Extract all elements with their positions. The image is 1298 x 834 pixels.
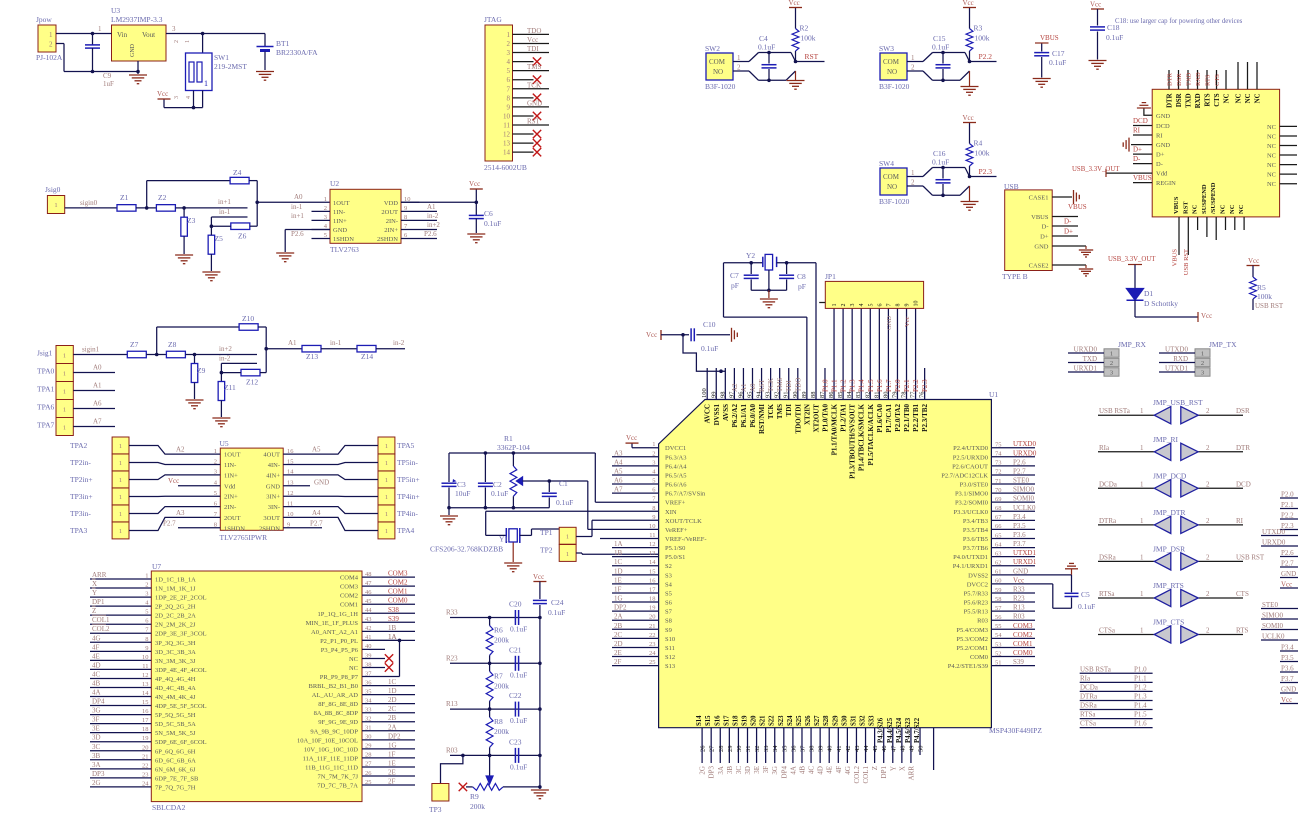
svg-text:COL2: COL2 bbox=[92, 625, 110, 633]
svg-text:200k: 200k bbox=[494, 636, 509, 645]
svg-text:SBLCDA2: SBLCDA2 bbox=[152, 803, 186, 812]
svg-text:2E: 2E bbox=[614, 649, 622, 657]
svg-text:COM3: COM3 bbox=[1013, 622, 1033, 630]
svg-text:1: 1 bbox=[385, 443, 388, 450]
svg-text:8A_8B_8C_8DP: 8A_8B_8C_8DP bbox=[314, 710, 359, 717]
svg-text:D-: D- bbox=[1133, 155, 1141, 163]
svg-text:Z: Z bbox=[92, 607, 96, 615]
svg-text:COM2: COM2 bbox=[1013, 631, 1033, 639]
svg-text:7: 7 bbox=[886, 304, 892, 307]
svg-text:XT2IN: XT2IN bbox=[803, 404, 811, 425]
svg-text:S5: S5 bbox=[665, 590, 672, 597]
svg-text:R6: R6 bbox=[494, 626, 503, 635]
svg-text:4P_4Q_4G_4H: 4P_4Q_4G_4H bbox=[155, 676, 196, 683]
svg-text:9: 9 bbox=[905, 304, 911, 307]
svg-text:4G: 4G bbox=[92, 634, 101, 642]
svg-text:DVCC1: DVCC1 bbox=[665, 445, 686, 452]
svg-text:9: 9 bbox=[404, 205, 407, 212]
svg-text:Z: Z bbox=[871, 766, 879, 770]
svg-text:Z11: Z11 bbox=[224, 383, 236, 392]
svg-text:C8: C8 bbox=[797, 272, 806, 281]
svg-text:0.1uF: 0.1uF bbox=[491, 489, 508, 498]
svg-text:P2.1/TB0: P2.1/TB0 bbox=[903, 404, 911, 432]
svg-text:P5.5/R13: P5.5/R13 bbox=[964, 609, 988, 616]
svg-text:JMP_RX: JMP_RX bbox=[1118, 340, 1147, 349]
svg-text:Y1: Y1 bbox=[499, 535, 508, 544]
svg-text:10: 10 bbox=[142, 654, 149, 661]
svg-text:TP3in-: TP3in- bbox=[70, 509, 91, 518]
svg-text:GND: GND bbox=[527, 99, 542, 107]
svg-text:8: 8 bbox=[895, 304, 901, 307]
svg-text:5D_5C_5B_5A: 5D_5C_5B_5A bbox=[155, 721, 196, 728]
svg-text:B3F-1020: B3F-1020 bbox=[879, 197, 910, 206]
svg-text:S23: S23 bbox=[778, 715, 785, 726]
svg-text:29: 29 bbox=[727, 746, 734, 753]
svg-text:COM2: COM2 bbox=[340, 593, 358, 600]
svg-text:2: 2 bbox=[1206, 553, 1210, 561]
svg-text:P3.6/TB5: P3.6/TB5 bbox=[963, 536, 988, 543]
svg-text:4E: 4E bbox=[92, 652, 100, 660]
svg-text:XIN: XIN bbox=[665, 509, 677, 516]
svg-text:3362P-104: 3362P-104 bbox=[497, 443, 530, 452]
svg-text:A0: A0 bbox=[749, 383, 757, 392]
svg-text:RI: RI bbox=[1156, 133, 1163, 140]
svg-text:P2.7: P2.7 bbox=[1281, 560, 1294, 568]
svg-text:GND: GND bbox=[886, 316, 893, 330]
svg-text:1uF: 1uF bbox=[103, 80, 114, 88]
svg-text:P4.2/STE1/S39: P4.2/STE1/S39 bbox=[948, 663, 988, 670]
svg-text:4F: 4F bbox=[92, 643, 100, 651]
svg-text:NC: NC bbox=[1267, 133, 1276, 140]
svg-text:2: 2 bbox=[1206, 480, 1210, 488]
svg-text:1: 1 bbox=[119, 460, 122, 467]
svg-text:R9: R9 bbox=[470, 792, 479, 801]
svg-text:14: 14 bbox=[142, 690, 149, 697]
svg-text:Vcc: Vcc bbox=[533, 573, 544, 581]
svg-text:DCD: DCD bbox=[1236, 480, 1251, 488]
svg-text:SW4: SW4 bbox=[879, 159, 894, 168]
svg-text:4D_4C_4B_4A: 4D_4C_4B_4A bbox=[155, 685, 196, 692]
svg-text:40: 40 bbox=[827, 746, 834, 753]
svg-text:P1.3/TBOUTH/SVSOUT: P1.3/TBOUTH/SVSOUT bbox=[849, 404, 857, 479]
svg-text:CTSa: CTSa bbox=[1099, 627, 1116, 635]
svg-text:A1: A1 bbox=[740, 383, 748, 392]
svg-text:18: 18 bbox=[142, 726, 149, 733]
svg-text:49: 49 bbox=[908, 746, 915, 753]
svg-text:4G: 4G bbox=[844, 766, 852, 775]
svg-text:in+1: in+1 bbox=[291, 212, 304, 220]
svg-text:P3.5: P3.5 bbox=[1281, 654, 1294, 662]
svg-text:A7: A7 bbox=[93, 418, 102, 426]
svg-text:SW3: SW3 bbox=[879, 44, 894, 53]
svg-text:Jsig1: Jsig1 bbox=[37, 349, 53, 358]
svg-text:0.1uF: 0.1uF bbox=[758, 43, 775, 52]
svg-text:UTXD1: UTXD1 bbox=[1165, 365, 1188, 373]
svg-text:43: 43 bbox=[854, 746, 861, 753]
svg-text:NC: NC bbox=[1267, 162, 1276, 169]
svg-text:1: 1 bbox=[204, 79, 208, 88]
svg-text:3: 3 bbox=[174, 96, 180, 99]
svg-text:SOMI0: SOMI0 bbox=[1013, 495, 1035, 503]
svg-text:1: 1 bbox=[385, 477, 388, 484]
svg-text:2D: 2D bbox=[614, 640, 623, 648]
svg-text:12: 12 bbox=[503, 131, 511, 139]
svg-text:P1.1/TA0/MCLK: P1.1/TA0/MCLK bbox=[831, 403, 839, 455]
svg-text:19: 19 bbox=[142, 735, 149, 742]
svg-text:TP2: TP2 bbox=[540, 546, 553, 555]
svg-text:Vcc: Vcc bbox=[157, 90, 168, 98]
svg-text:1: 1 bbox=[1201, 351, 1204, 358]
svg-text:A4: A4 bbox=[614, 458, 623, 466]
svg-text:CFS206-32.768KDZBB: CFS206-32.768KDZBB bbox=[430, 545, 503, 554]
svg-text:3: 3 bbox=[507, 49, 511, 57]
svg-text:P2.7/ADC12CLK: P2.7/ADC12CLK bbox=[941, 472, 988, 479]
svg-text:Z10: Z10 bbox=[242, 314, 254, 323]
svg-text:15: 15 bbox=[142, 699, 149, 706]
svg-text:COL1: COL1 bbox=[92, 616, 110, 624]
svg-text:C24: C24 bbox=[551, 598, 564, 607]
svg-text:1: 1 bbox=[49, 31, 53, 39]
svg-text:TP2in+: TP2in+ bbox=[70, 475, 93, 484]
svg-text:C17: C17 bbox=[1052, 49, 1065, 58]
svg-text:NC: NC bbox=[1192, 204, 1199, 214]
svg-text:1C: 1C bbox=[614, 558, 623, 566]
svg-text:P2.2: P2.2 bbox=[979, 52, 993, 61]
svg-text:RST: RST bbox=[758, 378, 766, 392]
svg-text:4C: 4C bbox=[808, 766, 816, 775]
svg-text:R8: R8 bbox=[494, 717, 503, 726]
svg-text:XT2OUT: XT2OUT bbox=[812, 404, 820, 433]
svg-text:219-2MST: 219-2MST bbox=[214, 62, 247, 71]
svg-text:NC: NC bbox=[1245, 93, 1252, 103]
svg-text:U7: U7 bbox=[152, 562, 161, 571]
svg-text:in-1: in-1 bbox=[330, 339, 342, 347]
svg-text:1IN-: 1IN- bbox=[333, 209, 345, 216]
svg-text:2N_2M_2K_2J: 2N_2M_2K_2J bbox=[155, 622, 196, 629]
svg-text:DVSS2: DVSS2 bbox=[968, 572, 988, 579]
svg-text:C2: C2 bbox=[493, 480, 502, 489]
svg-text:D-: D- bbox=[1156, 161, 1163, 168]
svg-text:3D: 3D bbox=[92, 734, 101, 742]
svg-text:MSP430F449IPZ: MSP430F449IPZ bbox=[989, 726, 1042, 735]
svg-text:R23: R23 bbox=[1013, 595, 1025, 603]
svg-text:1B: 1B bbox=[388, 624, 397, 632]
svg-text:VBUS: VBUS bbox=[1068, 203, 1087, 211]
svg-text:TXD: TXD bbox=[1083, 355, 1097, 363]
svg-text:R3: R3 bbox=[974, 24, 983, 33]
svg-text:6N_6M_6K_6J: 6N_6M_6K_6J bbox=[155, 766, 196, 773]
svg-text:TDO/TDI: TDO/TDI bbox=[794, 404, 802, 434]
svg-text:DSRa: DSRa bbox=[1080, 702, 1098, 710]
svg-text:P6.0/A0: P6.0/A0 bbox=[749, 404, 757, 428]
svg-text:1F: 1F bbox=[614, 585, 622, 593]
svg-text:URXD1: URXD1 bbox=[1074, 365, 1098, 373]
svg-text:3: 3 bbox=[145, 591, 148, 598]
svg-text:RXD: RXD bbox=[1173, 355, 1188, 363]
svg-text:P3.5: P3.5 bbox=[1013, 522, 1026, 530]
svg-text:AVSS: AVSS bbox=[722, 404, 730, 421]
svg-text:P1.4: P1.4 bbox=[858, 379, 866, 392]
svg-text:JP1: JP1 bbox=[825, 272, 836, 281]
svg-text:5P_5Q_5G_5H: 5P_5Q_5G_5H bbox=[155, 712, 196, 719]
svg-text:3IN-: 3IN- bbox=[268, 504, 280, 511]
svg-text:P2.3: P2.3 bbox=[979, 167, 993, 176]
svg-text:1: 1 bbox=[385, 494, 388, 501]
svg-text:P4.0/UTXD1: P4.0/UTXD1 bbox=[953, 554, 988, 561]
svg-text:0.1uF: 0.1uF bbox=[510, 625, 527, 634]
svg-text:R13: R13 bbox=[1013, 604, 1025, 612]
svg-text:1: 1 bbox=[63, 353, 66, 360]
svg-text:2A: 2A bbox=[388, 723, 397, 731]
svg-text:P2.7: P2.7 bbox=[163, 520, 176, 528]
svg-text:1A: 1A bbox=[388, 633, 397, 641]
svg-text:CASE1: CASE1 bbox=[1029, 195, 1049, 202]
svg-text:S28: S28 bbox=[823, 715, 830, 726]
svg-text:COM0: COM0 bbox=[970, 654, 988, 661]
svg-text:DTRa: DTRa bbox=[1080, 692, 1098, 700]
svg-text:DCD: DCD bbox=[1156, 123, 1170, 130]
svg-text:P1.1: P1.1 bbox=[831, 379, 839, 392]
svg-text:VBUS: VBUS bbox=[1172, 249, 1179, 267]
svg-text:1OUT: 1OUT bbox=[333, 200, 350, 207]
svg-text:39: 39 bbox=[818, 746, 825, 753]
svg-text:U1: U1 bbox=[989, 390, 998, 399]
svg-text:SUSPEND: SUSPEND bbox=[1201, 184, 1208, 214]
svg-text:2B: 2B bbox=[614, 622, 623, 630]
svg-text:BT1: BT1 bbox=[276, 39, 290, 48]
svg-text:27: 27 bbox=[709, 745, 716, 752]
svg-text:DTRa: DTRa bbox=[1099, 517, 1117, 525]
svg-text:0.1uF: 0.1uF bbox=[510, 762, 527, 771]
svg-text:P4.3/S26: P4.3/S26 bbox=[878, 717, 885, 743]
svg-text:P1.3: P1.3 bbox=[1134, 692, 1147, 700]
svg-text:Vcc: Vcc bbox=[626, 434, 637, 442]
svg-text:200k: 200k bbox=[470, 802, 485, 811]
svg-text:4: 4 bbox=[507, 58, 511, 66]
svg-text:3E: 3E bbox=[753, 766, 761, 774]
svg-text:NC: NC bbox=[1224, 93, 1231, 103]
svg-text:A5: A5 bbox=[312, 446, 321, 454]
svg-text:D-: D- bbox=[1064, 218, 1072, 226]
svg-text:URXD0: URXD0 bbox=[1262, 539, 1286, 547]
svg-text:Vcc: Vcc bbox=[1248, 257, 1259, 265]
svg-text:1: 1 bbox=[1140, 553, 1144, 561]
svg-text:TLV2765IPWR: TLV2765IPWR bbox=[220, 533, 268, 542]
svg-text:34: 34 bbox=[772, 745, 779, 752]
svg-text:ARR: ARR bbox=[907, 766, 915, 781]
svg-text:1: 1 bbox=[566, 551, 569, 558]
svg-text:200k: 200k bbox=[494, 681, 509, 690]
svg-text:/SUSPEND: /SUSPEND bbox=[1210, 182, 1217, 215]
svg-text:R33: R33 bbox=[446, 609, 458, 617]
svg-text:1: 1 bbox=[63, 407, 66, 414]
svg-text:TDI: TDI bbox=[527, 45, 539, 53]
svg-text:10: 10 bbox=[649, 523, 656, 530]
svg-text:S24: S24 bbox=[787, 715, 794, 726]
svg-text:5: 5 bbox=[324, 232, 327, 239]
svg-text:1: 1 bbox=[119, 511, 122, 518]
svg-text:NO: NO bbox=[887, 68, 897, 76]
svg-text:5: 5 bbox=[868, 304, 874, 307]
svg-text:pF: pF bbox=[731, 281, 739, 290]
svg-text:3: 3 bbox=[324, 214, 327, 221]
svg-text:TP5in+: TP5in+ bbox=[397, 475, 420, 484]
svg-text:11: 11 bbox=[503, 122, 510, 130]
svg-text:3C: 3C bbox=[735, 766, 743, 775]
svg-text:S10: S10 bbox=[665, 636, 675, 643]
svg-text:1: 1 bbox=[1140, 627, 1144, 635]
svg-text:2: 2 bbox=[911, 64, 915, 72]
svg-text:P3.7/TB6: P3.7/TB6 bbox=[963, 545, 989, 552]
svg-text:S22: S22 bbox=[769, 715, 776, 726]
svg-text:COM: COM bbox=[709, 58, 726, 66]
svg-text:in+2: in+2 bbox=[427, 221, 440, 229]
svg-text:3D: 3D bbox=[744, 766, 752, 775]
svg-text:P5.4/COM3: P5.4/COM3 bbox=[956, 627, 988, 634]
svg-text:S27: S27 bbox=[814, 715, 821, 726]
svg-text:RXD: RXD bbox=[1195, 93, 1202, 108]
svg-text:P2.0: P2.0 bbox=[1281, 491, 1294, 499]
svg-text:12: 12 bbox=[142, 672, 149, 679]
svg-text:R33: R33 bbox=[1013, 585, 1025, 593]
svg-text:2G: 2G bbox=[699, 766, 707, 775]
svg-text:C20: C20 bbox=[509, 600, 522, 609]
svg-text:TDO: TDO bbox=[794, 378, 802, 392]
svg-text:P3_P4_P5_P6: P3_P4_P5_P6 bbox=[321, 647, 359, 654]
svg-text:50: 50 bbox=[918, 746, 925, 753]
svg-text:GND: GND bbox=[333, 227, 347, 234]
svg-text:2: 2 bbox=[1206, 627, 1210, 635]
svg-text:0.1uF: 0.1uF bbox=[932, 43, 949, 52]
svg-text:A5: A5 bbox=[614, 467, 623, 475]
svg-text:Z9: Z9 bbox=[197, 366, 206, 375]
svg-text:P2.7: P2.7 bbox=[1013, 467, 1026, 475]
svg-text:2SHDN: 2SHDN bbox=[377, 236, 398, 243]
svg-text:PR_P9_P8_P7: PR_P9_P8_P7 bbox=[320, 674, 359, 681]
svg-text:JMP_RI: JMP_RI bbox=[1153, 435, 1179, 444]
svg-text:2E: 2E bbox=[388, 768, 396, 776]
svg-text:RTS: RTS bbox=[1205, 93, 1212, 106]
svg-text:6P_6Q_6G_6H: 6P_6Q_6G_6H bbox=[155, 748, 196, 755]
svg-text:JMP_USB_RST: JMP_USB_RST bbox=[1153, 398, 1203, 407]
svg-text:NC: NC bbox=[1255, 93, 1262, 103]
svg-text:R03: R03 bbox=[446, 746, 458, 754]
svg-text:MIN_1E_1F_PLUS: MIN_1E_1F_PLUS bbox=[306, 620, 359, 627]
svg-text:TPA7: TPA7 bbox=[37, 421, 54, 430]
svg-text:USB_3.3V_OUT: USB_3.3V_OUT bbox=[1108, 256, 1156, 263]
svg-text:B3F-1020: B3F-1020 bbox=[879, 82, 910, 91]
svg-text:P3.6: P3.6 bbox=[1013, 531, 1026, 539]
svg-text:STE0: STE0 bbox=[1262, 601, 1278, 609]
svg-text:48: 48 bbox=[899, 746, 906, 753]
svg-text:A2: A2 bbox=[731, 383, 739, 392]
svg-text:A6: A6 bbox=[614, 477, 623, 485]
svg-text:5: 5 bbox=[507, 67, 511, 75]
svg-text:2F: 2F bbox=[614, 658, 622, 666]
svg-text:in-1: in-1 bbox=[291, 203, 303, 211]
svg-text:2: 2 bbox=[841, 304, 847, 307]
svg-text:S18: S18 bbox=[732, 715, 739, 726]
svg-text:3C: 3C bbox=[92, 743, 101, 751]
svg-text:8F_8G_8E_8D: 8F_8G_8E_8D bbox=[318, 701, 358, 708]
svg-text:1P_1Q_1G_1H: 1P_1Q_1G_1H bbox=[318, 611, 359, 618]
svg-text:1D: 1D bbox=[388, 687, 397, 695]
svg-text:1: 1 bbox=[911, 54, 915, 62]
svg-text:3P_3Q_3G_3H: 3P_3Q_3G_3H bbox=[155, 640, 196, 647]
svg-text:P5.6/R23: P5.6/R23 bbox=[964, 600, 988, 607]
svg-text:DP4: DP4 bbox=[780, 766, 788, 779]
svg-text:RST/NMI: RST/NMI bbox=[758, 404, 766, 434]
svg-text:P3.0/STE0: P3.0/STE0 bbox=[960, 482, 988, 489]
svg-text:1: 1 bbox=[185, 40, 191, 43]
svg-text:P1.0: P1.0 bbox=[1134, 665, 1147, 673]
svg-text:1D_1C_1B_1A: 1D_1C_1B_1A bbox=[155, 577, 196, 584]
svg-text:4A: 4A bbox=[789, 766, 797, 775]
svg-text:NC: NC bbox=[1267, 172, 1276, 179]
svg-text:1: 1 bbox=[1140, 480, 1144, 488]
svg-text:P6.2/A2: P6.2/A2 bbox=[731, 404, 739, 428]
svg-text:DVCC2: DVCC2 bbox=[967, 581, 988, 588]
svg-text:S6: S6 bbox=[665, 600, 673, 607]
svg-text:4IN+: 4IN+ bbox=[266, 472, 280, 479]
svg-text:JTAG: JTAG bbox=[484, 15, 502, 24]
svg-text:100k: 100k bbox=[1257, 292, 1272, 301]
svg-text:Vcc: Vcc bbox=[527, 36, 538, 44]
svg-text:P6.4/A4: P6.4/A4 bbox=[665, 463, 687, 470]
svg-text:21: 21 bbox=[142, 753, 149, 760]
svg-text:COM0: COM0 bbox=[1013, 649, 1033, 657]
svg-text:1: 1 bbox=[119, 494, 122, 501]
svg-text:A0: A0 bbox=[93, 364, 102, 372]
svg-text:Z6: Z6 bbox=[238, 232, 247, 241]
svg-text:1G: 1G bbox=[614, 595, 623, 603]
svg-text:2A: 2A bbox=[614, 613, 623, 621]
svg-text:TPA1: TPA1 bbox=[37, 385, 54, 394]
svg-text:P2.3/TB2: P2.3/TB2 bbox=[921, 404, 929, 432]
svg-text:S11: S11 bbox=[665, 645, 675, 652]
svg-text:TMS: TMS bbox=[776, 378, 784, 393]
svg-text:P1.5: P1.5 bbox=[867, 379, 875, 392]
svg-text:3A: 3A bbox=[717, 766, 725, 775]
svg-text:XOUT/TCLK: XOUT/TCLK bbox=[665, 518, 702, 525]
svg-text:DP1: DP1 bbox=[92, 598, 105, 606]
svg-text:P1.7/CA1: P1.7/CA1 bbox=[885, 404, 893, 433]
svg-text:9A_9B_9C_10DP: 9A_9B_9C_10DP bbox=[310, 728, 358, 735]
svg-text:1DP_2E_2F_2COL: 1DP_2E_2F_2COL bbox=[155, 595, 207, 602]
svg-text:4C: 4C bbox=[92, 670, 101, 678]
svg-text:P1.2: P1.2 bbox=[1134, 683, 1147, 691]
svg-text:P5.0/S1: P5.0/S1 bbox=[665, 554, 685, 561]
svg-text:COM4: COM4 bbox=[340, 575, 359, 582]
svg-text:3E: 3E bbox=[92, 725, 100, 733]
svg-text:36: 36 bbox=[790, 745, 797, 752]
svg-text:1: 1 bbox=[119, 528, 122, 535]
svg-text:P2.2: P2.2 bbox=[912, 379, 920, 392]
svg-text:TP2in-: TP2in- bbox=[70, 458, 91, 467]
svg-text:Y: Y bbox=[889, 766, 897, 771]
svg-text:in-2: in-2 bbox=[427, 212, 439, 220]
svg-text:C22: C22 bbox=[509, 691, 522, 700]
svg-text:2G: 2G bbox=[92, 779, 101, 787]
svg-text:TP1: TP1 bbox=[540, 528, 553, 537]
svg-text:Vcc: Vcc bbox=[1281, 581, 1292, 589]
svg-text:4A: 4A bbox=[92, 689, 101, 697]
svg-text:NC: NC bbox=[1267, 124, 1276, 131]
svg-text:2IN-: 2IN- bbox=[224, 504, 236, 511]
svg-text:6: 6 bbox=[877, 304, 883, 307]
svg-text:REGIN: REGIN bbox=[1156, 180, 1176, 187]
svg-text:Y2: Y2 bbox=[746, 251, 755, 260]
